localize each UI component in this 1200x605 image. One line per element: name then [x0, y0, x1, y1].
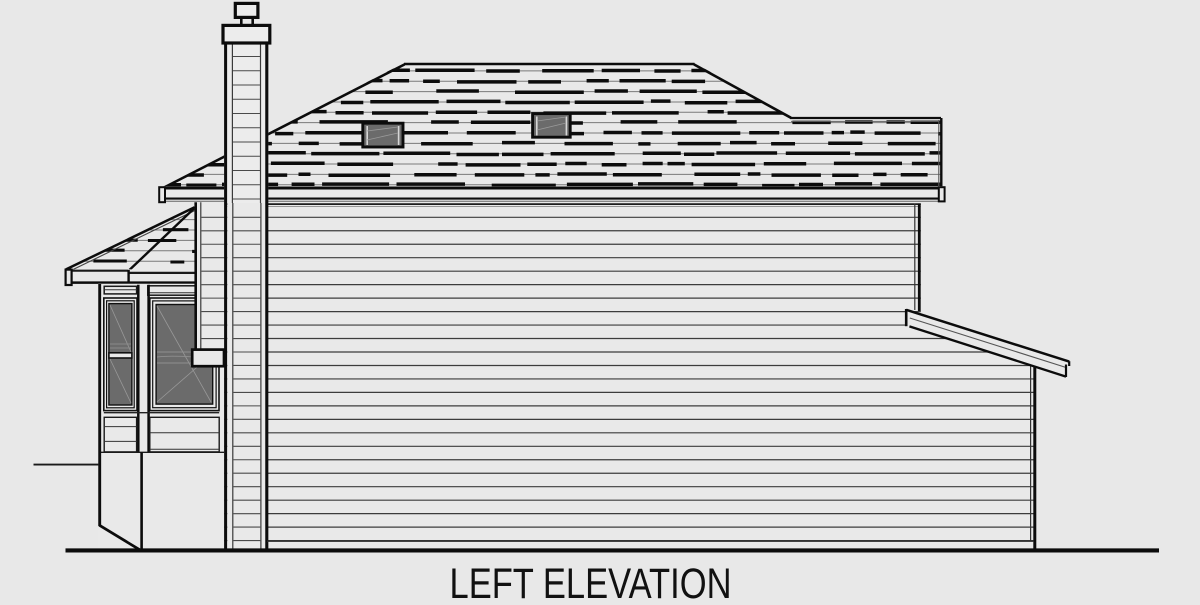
- svg-text:LEFT ELEVATION: LEFT ELEVATION: [450, 560, 732, 600]
